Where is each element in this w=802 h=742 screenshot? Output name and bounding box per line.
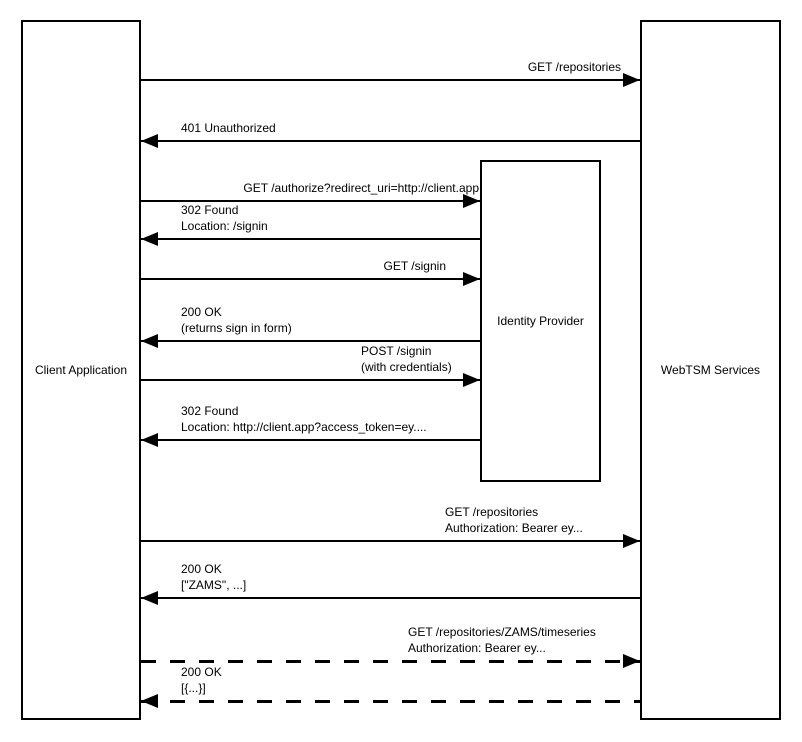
message-label-line: 302 Found	[181, 202, 268, 218]
arrowhead-right-icon	[463, 194, 480, 208]
message-line-11	[141, 660, 640, 663]
message-line-5	[141, 278, 480, 280]
message-line-6	[141, 340, 480, 342]
sequence-diagram: Client ApplicationIdentity ProviderWebTS…	[0, 0, 802, 742]
message-label-6: 200 OK(returns sign in form)	[181, 304, 292, 336]
message-label-9: GET /repositoriesAuthorization: Bearer e…	[445, 504, 583, 536]
message-label-5: GET /signin	[384, 258, 446, 274]
message-label-line: 200 OK	[181, 304, 292, 320]
arrowhead-left-icon	[141, 591, 158, 605]
actor-box-client-application: Client Application	[21, 20, 141, 720]
arrowhead-right-icon	[623, 654, 640, 668]
message-label-4: 302 FoundLocation: /signin	[181, 202, 268, 234]
message-label-line: 302 Found	[181, 403, 427, 419]
arrowhead-left-icon	[141, 134, 158, 148]
actor-label-client-application: Client Application	[35, 363, 127, 377]
message-label-3: GET /authorize?redirect_uri=http://clien…	[243, 180, 479, 196]
actor-label-webtsm-services: WebTSM Services	[661, 363, 760, 377]
message-label-line: 401 Unauthorized	[181, 120, 276, 136]
arrowhead-right-icon	[623, 534, 640, 548]
message-label-line: GET /repositories/ZAMS/timeseries	[408, 624, 596, 640]
message-line-7	[141, 379, 480, 381]
arrowhead-left-icon	[141, 232, 158, 246]
message-label-11: GET /repositories/ZAMS/timeseriesAuthori…	[408, 624, 596, 656]
message-label-line: Location: /signin	[181, 218, 268, 234]
message-label-line: (returns sign in form)	[181, 320, 292, 336]
arrowhead-left-icon	[141, 334, 158, 348]
message-line-4	[141, 238, 480, 240]
message-label-line: 200 OK	[181, 561, 246, 577]
actor-box-identity-provider: Identity Provider	[480, 160, 601, 482]
message-label-line: Location: http://client.app?access_token…	[181, 419, 427, 435]
message-label-8: 302 FoundLocation: http://client.app?acc…	[181, 403, 427, 435]
message-label-line: GET /authorize?redirect_uri=http://clien…	[243, 180, 479, 196]
message-line-12	[141, 700, 640, 703]
message-label-line: POST /signin	[361, 343, 452, 359]
arrowhead-left-icon	[141, 694, 158, 708]
message-label-10: 200 OK["ZAMS", ...]	[181, 561, 246, 593]
message-label-12: 200 OK[{...}]	[181, 664, 222, 696]
arrowhead-right-icon	[463, 373, 480, 387]
arrowhead-right-icon	[463, 272, 480, 286]
message-label-line: GET /signin	[384, 258, 446, 274]
arrowhead-right-icon	[623, 73, 640, 87]
message-label-2: 401 Unauthorized	[181, 120, 276, 136]
arrowhead-left-icon	[141, 433, 158, 447]
message-label-line: 200 OK	[181, 664, 222, 680]
message-label-line: [{...}]	[181, 680, 222, 696]
message-label-line: ["ZAMS", ...]	[181, 577, 246, 593]
message-label-1: GET /repositories	[528, 59, 621, 75]
message-label-7: POST /signin(with credentials)	[361, 343, 452, 375]
message-label-line: GET /repositories	[528, 59, 621, 75]
message-line-8	[141, 439, 480, 441]
message-label-line: (with credentials)	[361, 359, 452, 375]
actor-box-webtsm-services: WebTSM Services	[640, 20, 781, 720]
actor-label-identity-provider: Identity Provider	[497, 314, 584, 328]
message-line-2	[141, 140, 640, 142]
message-line-9	[141, 540, 640, 542]
message-label-line: Authorization: Bearer ey...	[445, 520, 583, 536]
message-label-line: Authorization: Bearer ey...	[408, 640, 596, 656]
message-label-line: GET /repositories	[445, 504, 583, 520]
message-line-10	[141, 597, 640, 599]
message-line-1	[141, 79, 640, 81]
